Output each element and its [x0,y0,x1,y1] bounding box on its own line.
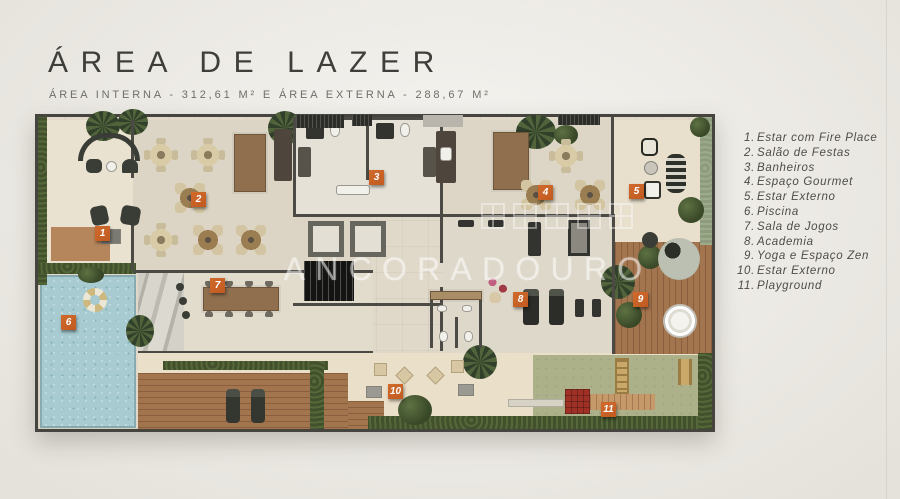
elevator-1 [308,221,344,257]
legend-label: Estar Externo [757,190,836,205]
legend-item-10: 10.Estar Externo [733,264,893,279]
wall-gourmet-estar5 [611,117,614,215]
page-subtitle: ÁREA INTERNA - 312,61 M² E ÁREA EXTERNA … [49,89,491,101]
hedge-bottom-right [698,353,712,429]
legend-num: 9. [733,249,755,264]
dumbbell-stand-b [592,299,601,317]
plan-marker-9: 9 [633,292,648,307]
square-table [575,180,605,210]
wc-wall-left [430,300,433,348]
barbell-rack-a [458,220,474,227]
bath-counter-left [298,147,311,177]
vase-1 [176,283,184,291]
square-table [236,225,266,255]
estar10-seat [374,363,387,376]
fire-armchair-a [89,204,110,226]
legend-item-1: 1.Estar com Fire Place [733,131,893,146]
legend-item-3: 3.Banheiros [733,161,893,176]
elevator-2 [350,221,386,257]
jacuzzi [663,304,697,338]
legend-item-4: 4.Espaço Gourmet [733,175,893,190]
plan-marker-2: 2 [191,192,206,207]
legend-item-5: 5.Estar Externo [733,190,893,205]
legend-label: Espaço Gourmet [757,175,853,190]
wall-gourmet-south [443,214,615,217]
dumbbell-stand-a [575,299,584,317]
legend-item-6: 6.Piscina [733,205,893,220]
bush-corner-ne [690,117,710,137]
estar10-mat-a [366,386,382,398]
legend-num: 1. [733,131,755,146]
ac-unit-3 [423,115,463,127]
ac-unit-4 [558,115,600,125]
bench-press [568,220,590,256]
pouf-round [106,161,117,172]
plan-marker-7: 7 [210,278,225,293]
legend-num: 2. [733,146,755,161]
plan-marker-6: 6 [61,315,76,330]
legend-num: 5. [733,190,755,205]
bush-pool-top [78,267,104,283]
palm-pool-corner [126,315,154,347]
barbell-rack-b [488,220,504,227]
zen-pillow-chair [642,232,658,248]
legend-label: Playground [757,279,822,294]
vase-3 [182,311,190,319]
page-edge-line [886,0,887,499]
ac-unit-2 [352,115,372,126]
page-title: ÁREA DE LAZER [48,46,447,80]
cooktop [440,147,452,161]
legend-label: Estar Externo [757,264,836,279]
treadmill-b [549,289,564,325]
legend-item-7: 7.Sala de Jogos [733,220,893,235]
legend-num: 7. [733,220,755,235]
floorplan-canvas: ANCORADOURO 1 2 3 4 5 6 7 8 9 10 11 [35,114,715,432]
sun-lounger-b [251,389,265,423]
ac-unit-1 [296,115,344,128]
legend-num: 11. [733,279,755,294]
legend-label: Academia [757,235,814,250]
wc-wall-mid [455,317,458,348]
legend-num: 8. [733,235,755,250]
armchair-b [122,159,138,173]
wc-counter [430,291,482,300]
legend-num: 3. [733,161,755,176]
round-table [144,138,178,172]
palm-terrace-center [463,345,497,379]
legend-label: Banheiros [757,161,815,176]
bush-estar5-corner [678,197,704,223]
playground-slide [678,359,692,385]
playground-house [565,389,590,414]
legend-item-8: 8.Academia [733,235,893,250]
floorplan-page: ÁREA DE LAZER ÁREA INTERNA - 312,61 M² E… [0,0,900,499]
legend-list: 1.Estar com Fire Place 2.Salão de Festas… [733,131,893,294]
legend-label: Piscina [757,205,799,220]
wall-jogos-academia-a [440,217,443,263]
hedge-column [310,361,324,429]
round-table [191,138,225,172]
legend-label: Salão de Festas [757,146,850,161]
fire-armchair-b [119,204,141,226]
round-table [144,223,178,257]
legend-num: 10. [733,264,755,279]
plan-marker-8: 8 [513,292,528,307]
legend-item-2: 2.Salão de Festas [733,146,893,161]
plan-marker-1: 1 [95,226,110,241]
plan-marker-10: 10 [388,384,403,399]
long-table-salao [234,134,266,192]
playground-platform [590,394,655,410]
wall-jogos-south [138,351,373,353]
palm-zen-left [601,265,635,299]
legend-label: Yoga e Espaço Zen [757,249,869,264]
stairwell [304,261,354,301]
wc-toilet-b [464,331,473,342]
vase-2 [179,297,187,305]
estar10-mat-b [458,384,474,396]
games-items [486,277,512,303]
playground-ladder [615,358,629,394]
estar10-seat [451,360,464,373]
plan-marker-5: 5 [629,184,644,199]
outdoor-lounge [666,154,686,193]
wc-toilet-a [439,331,448,342]
legend-item-9: 9.Yoga e Espaço Zen [733,249,893,264]
kitchen-island-left [274,129,292,181]
bath-counter-right [423,147,436,177]
hedge-above-deck [163,361,328,370]
plan-marker-4: 4 [538,185,553,200]
sun-lounger-a [226,389,240,423]
plan-marker-3: 3 [369,170,384,185]
hedge-left [38,117,47,285]
armchair-a [86,159,102,173]
playground-beam [508,399,564,407]
wall-below-core [293,303,443,306]
outdoor-pouf [644,161,658,175]
legend-item-11: 11.Playground [733,279,893,294]
legend-num: 4. [733,175,755,190]
wall-academia-east [612,214,615,354]
toilet-right [400,123,410,137]
wc-wall-right [479,300,482,348]
square-table [193,225,223,255]
gym-machine [528,222,541,256]
bath-closet-right [376,123,394,139]
legend-num: 6. [733,205,755,220]
legend-label: Sala de Jogos [757,220,839,235]
outdoor-chair [641,138,658,156]
round-table [549,139,583,173]
vanity-sinks [336,185,370,195]
bush-terrace-center [398,395,432,425]
pool-float-ring [83,288,107,312]
outdoor-seat [644,181,661,199]
legend-label: Estar com Fire Place [757,131,878,146]
zen-daybed [658,238,700,280]
wc-stool-a [437,305,447,312]
wc-stool-b [462,305,472,312]
plan-marker-11: 11 [601,402,616,417]
